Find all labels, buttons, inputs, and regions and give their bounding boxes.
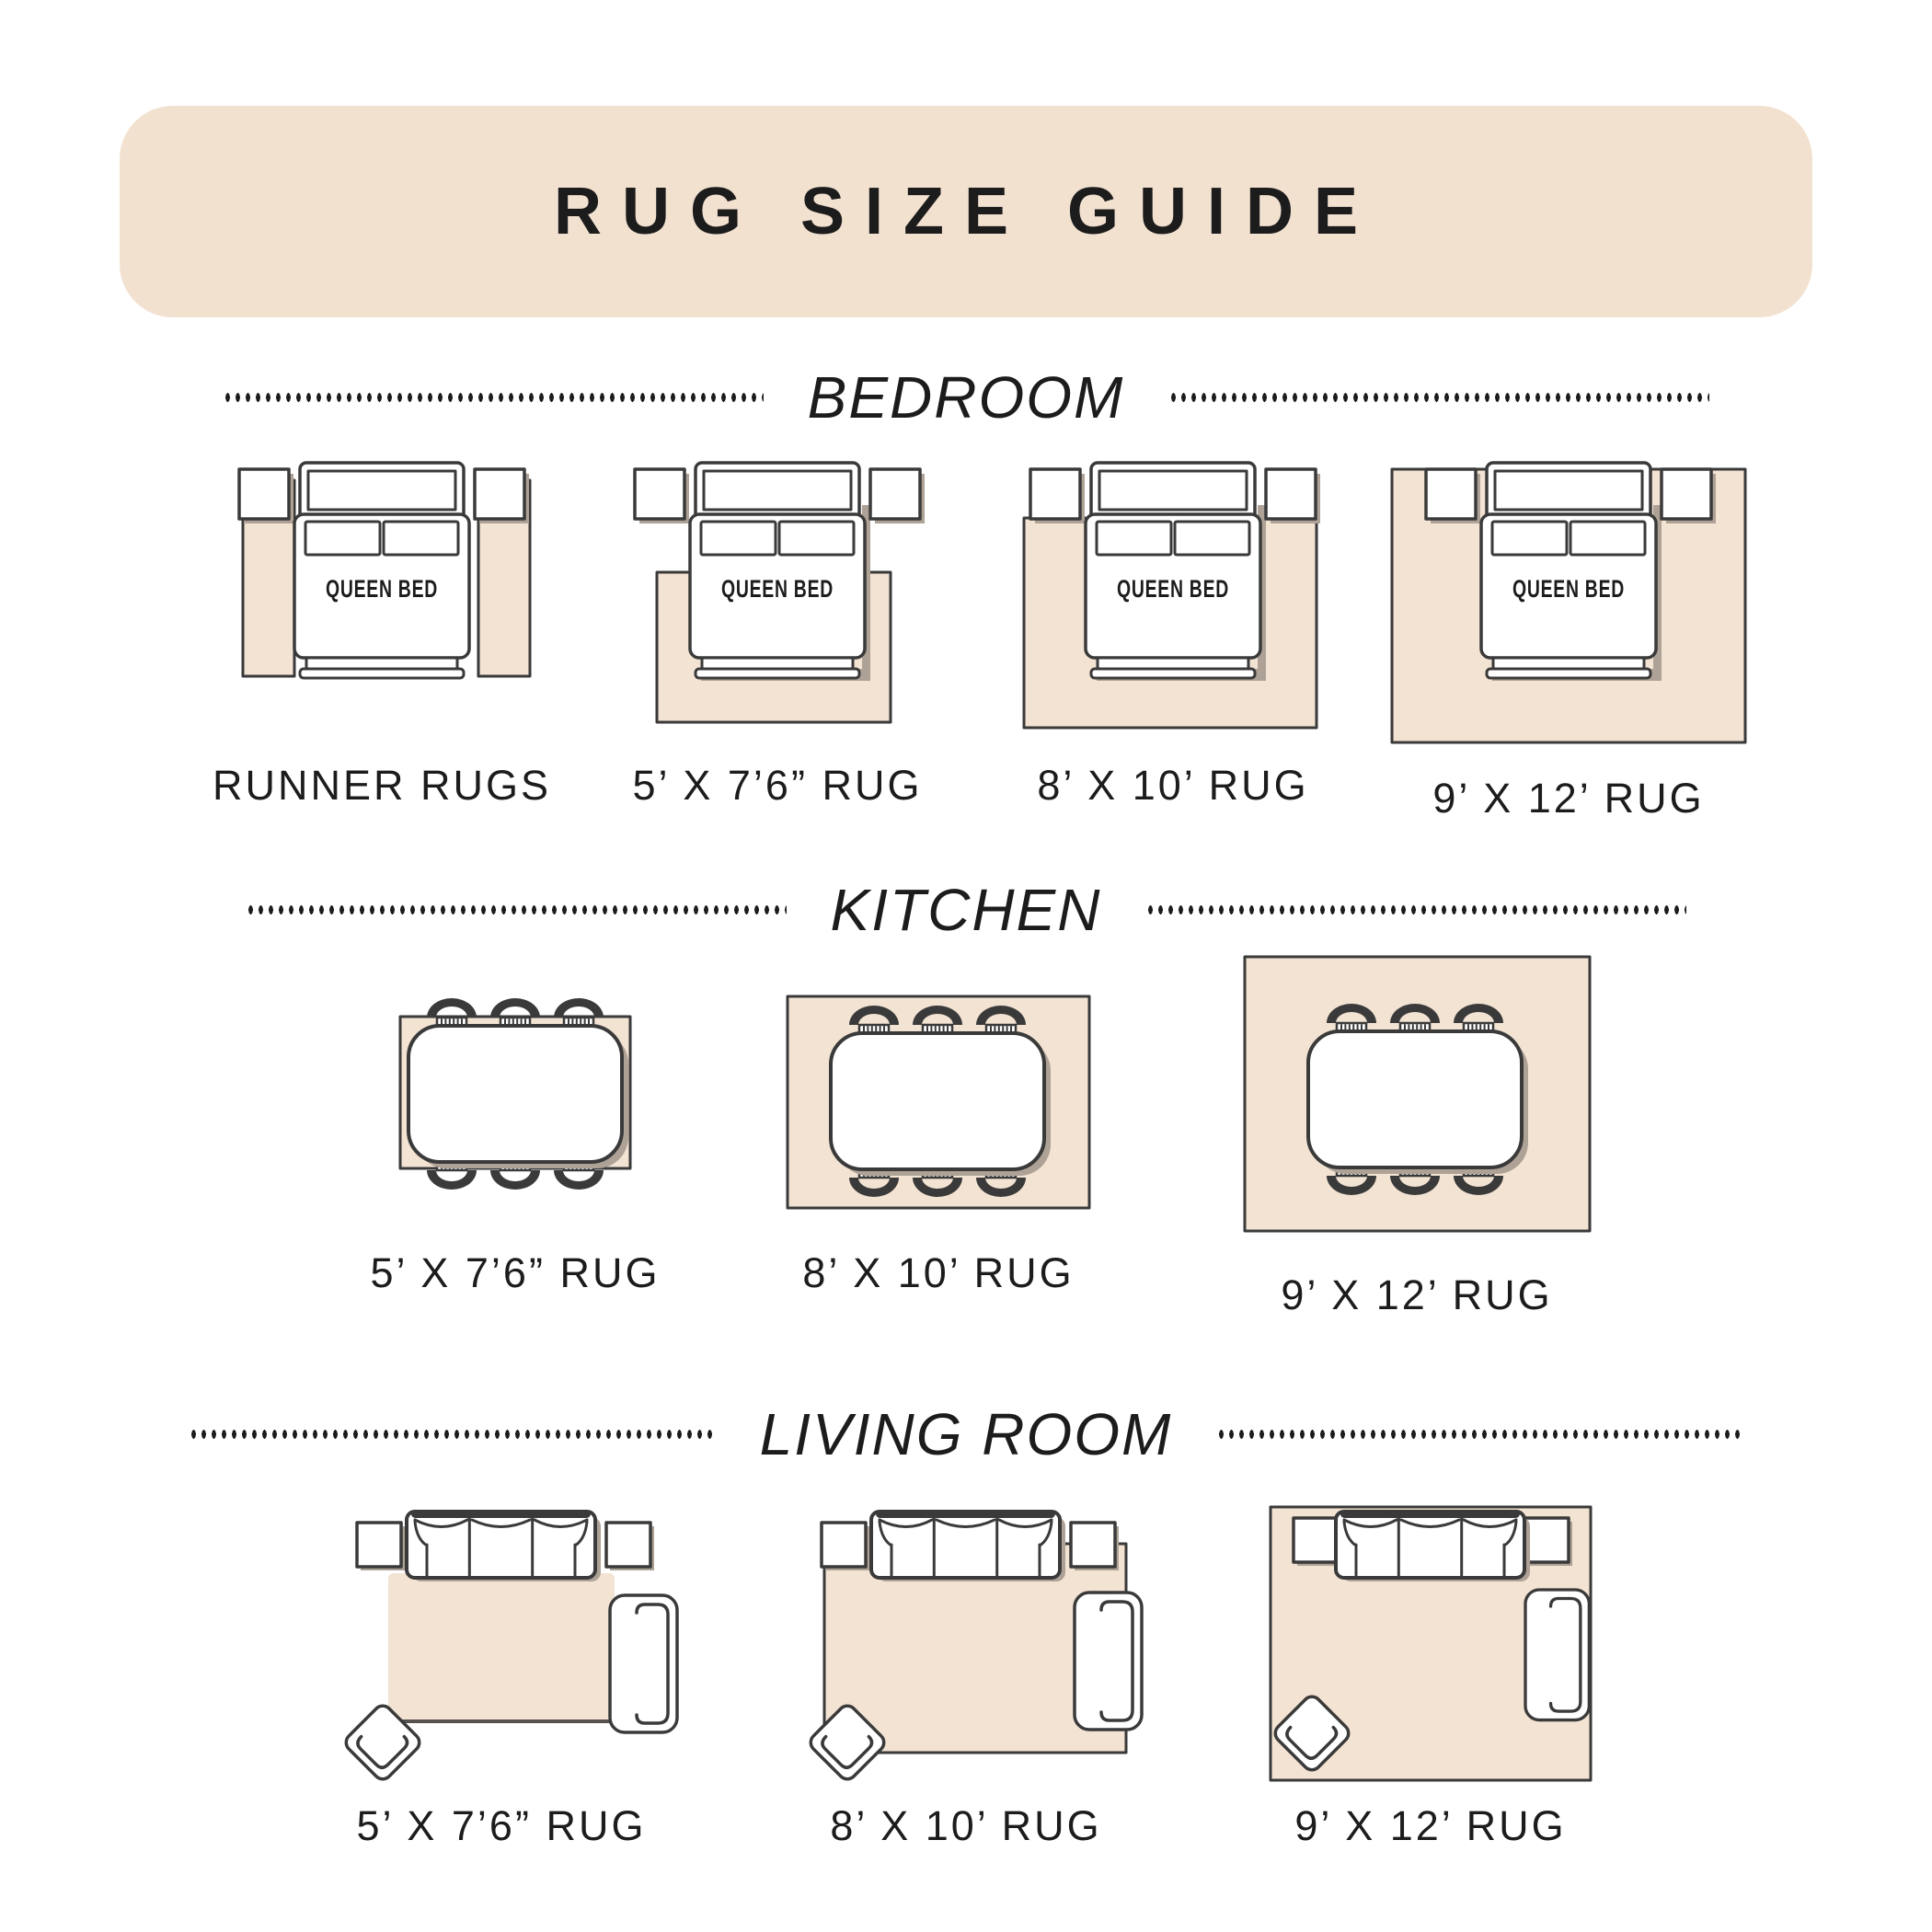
queen-bed xyxy=(690,463,865,678)
kitchen-table xyxy=(831,1033,1051,1176)
diagram-bedroom-8x10: QUEEN BED 8’ X 10’ RUG xyxy=(994,457,1352,810)
side-table-right xyxy=(1071,1523,1119,1570)
dotted-divider-left xyxy=(223,392,764,403)
title-banner: RUG SIZE GUIDE xyxy=(120,106,1812,317)
dotted-divider-left xyxy=(246,904,787,915)
kitchen-diagrams-row: 5’ X 7’6” RUG 8’ X 10’ RUG xyxy=(0,955,1932,1319)
nightstand-left xyxy=(1426,469,1480,523)
kitchen-5x76-floorplan xyxy=(336,955,695,1235)
sofa xyxy=(1336,1510,1530,1581)
diagram-kitchen-8x10: 8’ X 10’ RUG xyxy=(759,955,1118,1297)
chaise xyxy=(1075,1593,1142,1730)
section-title-bedroom: BEDROOM xyxy=(808,363,1125,431)
rug-bottom-shadow xyxy=(399,1719,615,1723)
nightstand-right xyxy=(870,469,925,523)
bed-label: QUEEN BED xyxy=(1512,575,1625,603)
dotted-divider-right xyxy=(1145,904,1686,915)
rug-size-guide-page: RUG SIZE GUIDE BEDROOM QUEEN BED RUNNER … xyxy=(0,0,1932,1932)
sofa xyxy=(871,1510,1065,1581)
bed-label: QUEEN BED xyxy=(721,575,834,603)
nightstand-left xyxy=(1030,469,1085,523)
rug-size-label: 9’ X 12’ RUG xyxy=(1281,1271,1552,1319)
rug-size-label: 9’ X 12’ RUG xyxy=(1294,1802,1566,1850)
kitchen-9x12-floorplan xyxy=(1237,955,1596,1235)
diagram-runner-rugs: QUEEN BED RUNNER RUGS xyxy=(202,457,561,810)
bedroom-8x10-floorplan: QUEEN BED xyxy=(994,457,1352,747)
diagram-living-5x76: 5’ X 7’6” RUG xyxy=(322,1498,681,1850)
bedroom-5x76-floorplan: QUEEN BED xyxy=(598,457,957,747)
section-title-kitchen: KITCHEN xyxy=(831,876,1102,944)
chaise xyxy=(1525,1590,1589,1720)
rug-size-label: RUNNER RUGS xyxy=(213,762,551,810)
queen-bed xyxy=(1481,463,1656,678)
section-header-kitchen: KITCHEN xyxy=(189,874,1743,946)
rug-size-label: 5’ X 7’6” RUG xyxy=(633,762,923,810)
rug-size-label: 8’ X 10’ RUG xyxy=(1037,762,1308,810)
bed-label: QUEEN BED xyxy=(1117,575,1229,603)
page-title: RUG SIZE GUIDE xyxy=(554,174,1378,249)
side-table-right xyxy=(1524,1518,1572,1566)
dotted-divider-left xyxy=(189,1429,716,1440)
nightstand-right xyxy=(475,469,529,523)
queen-bed xyxy=(1086,463,1260,678)
rug-size-label: 8’ X 10’ RUG xyxy=(802,1249,1074,1297)
bedroom-diagrams-row: QUEEN BED RUNNER RUGS QUEEN BED 5’ X 7’6… xyxy=(0,457,1932,822)
nightstand-left xyxy=(239,469,293,523)
sofa xyxy=(407,1510,601,1581)
chaise xyxy=(610,1595,677,1732)
diagram-living-8x10: 8’ X 10’ RUG xyxy=(787,1498,1145,1850)
bed-label: QUEEN BED xyxy=(326,575,438,603)
diagram-kitchen-5x76: 5’ X 7’6” RUG xyxy=(336,955,695,1297)
kitchen-table xyxy=(1308,1031,1528,1174)
bedroom-9x12-floorplan: QUEEN BED xyxy=(1389,457,1748,747)
section-header-bedroom: BEDROOM xyxy=(189,362,1743,433)
diagram-bedroom-5x76: QUEEN BED 5’ X 7’6” RUG xyxy=(598,457,957,810)
rug-size-label: 5’ X 7’6” RUG xyxy=(357,1802,647,1850)
living-8x10-floorplan xyxy=(787,1498,1145,1788)
living-9x12-floorplan xyxy=(1251,1498,1610,1788)
nightstand-right xyxy=(1662,469,1716,523)
rug xyxy=(388,1573,615,1723)
living-room-diagrams-row: 5’ X 7’6” RUG 8’ X 10’ RUG 9’ xyxy=(0,1498,1932,1850)
diagram-living-9x12: 9’ X 12’ RUG xyxy=(1251,1498,1610,1850)
side-table-left xyxy=(822,1523,869,1570)
living-5x76-floorplan xyxy=(322,1498,681,1788)
kitchen-8x10-floorplan xyxy=(759,955,1118,1235)
diagram-kitchen-9x12: 9’ X 12’ RUG xyxy=(1237,955,1596,1319)
side-table-right xyxy=(606,1523,654,1570)
runner-rugs-floorplan: QUEEN BED xyxy=(202,457,561,747)
nightstand-left xyxy=(635,469,689,523)
nightstand-right xyxy=(1266,469,1320,523)
dotted-divider-right xyxy=(1216,1429,1743,1440)
kitchen-table xyxy=(408,1026,628,1168)
queen-bed xyxy=(294,463,469,678)
rug-size-label: 9’ X 12’ RUG xyxy=(1432,775,1704,822)
side-table-left xyxy=(357,1523,405,1570)
rug-size-label: 5’ X 7’6” RUG xyxy=(371,1249,661,1297)
rug-size-label: 8’ X 10’ RUG xyxy=(830,1802,1101,1850)
section-header-living-room: LIVING ROOM xyxy=(189,1398,1743,1470)
section-title-living-room: LIVING ROOM xyxy=(760,1400,1173,1468)
diagram-bedroom-9x12: QUEEN BED 9’ X 12’ RUG xyxy=(1389,457,1748,822)
dotted-divider-right xyxy=(1168,392,1709,403)
